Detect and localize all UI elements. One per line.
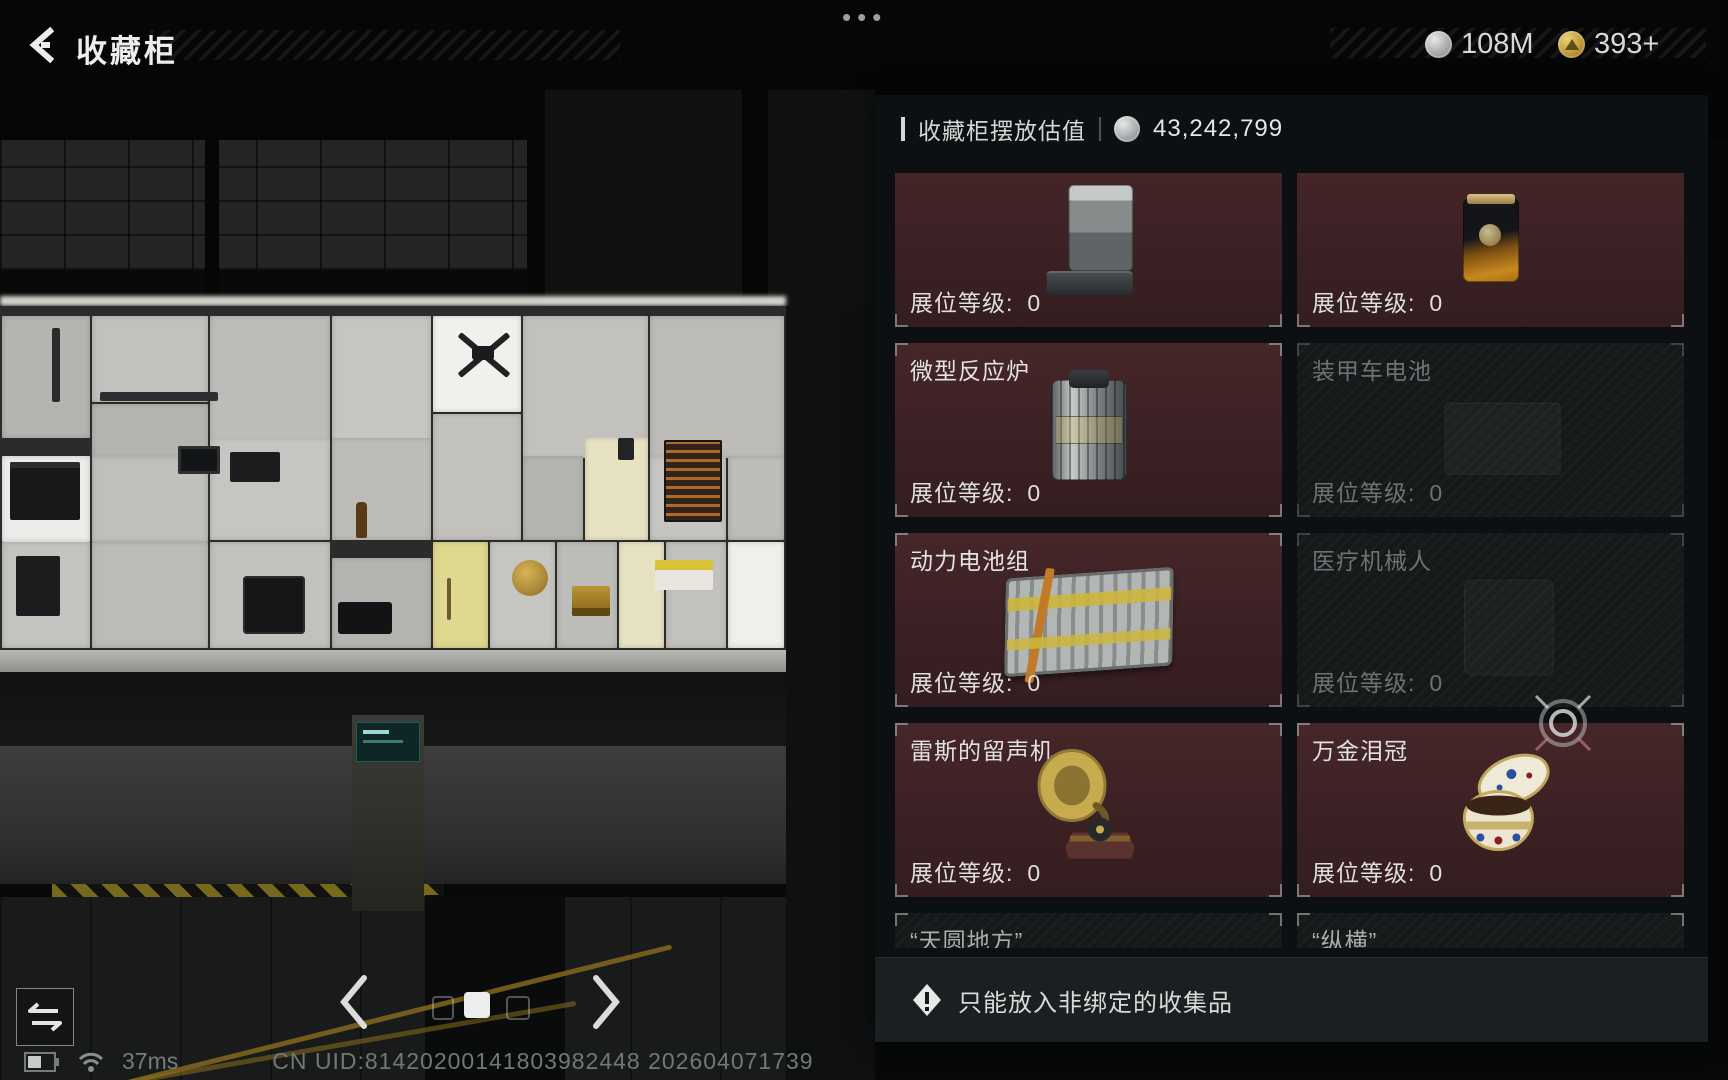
wall-item-parcel-box bbox=[655, 560, 713, 590]
wall-panel bbox=[332, 316, 431, 458]
item-image-coffee-bag bbox=[1463, 198, 1519, 282]
gold-coin-icon bbox=[1558, 31, 1585, 58]
wall-panel bbox=[523, 316, 648, 458]
wall-item-frame bbox=[618, 438, 634, 460]
booth-level: 展位等级:0 bbox=[1312, 664, 1443, 698]
booth-level: 展位等级:0 bbox=[910, 854, 1041, 888]
cabinet-value: 43,242,799 bbox=[1153, 115, 1283, 143]
collection-tile[interactable]: “纵横” 展位等级:0 bbox=[1297, 913, 1684, 948]
gold-amount: 393+ bbox=[1594, 28, 1659, 61]
ceiling-grid bbox=[0, 140, 535, 270]
wall-panel bbox=[210, 316, 330, 458]
booth-level: 展位等级:0 bbox=[1312, 854, 1443, 888]
warning-diamond-icon bbox=[911, 983, 943, 1017]
cabinet-light bbox=[0, 296, 786, 306]
wall-item-case bbox=[243, 576, 305, 634]
silver-amount: 108M bbox=[1461, 28, 1534, 61]
wall-item-device bbox=[230, 452, 280, 482]
silver-coin-icon bbox=[1425, 31, 1452, 58]
tiles-viewport[interactable]: 展位等级:0 展位等级:0 微型反应炉 展位等级:0 装甲车电池 bbox=[875, 173, 1708, 948]
notice-text: 只能放入非绑定的收集品 bbox=[958, 983, 1233, 1018]
wall-panel bbox=[433, 542, 488, 648]
item-image-armored-vehicle-battery bbox=[1444, 403, 1560, 475]
wall-panel bbox=[2, 316, 90, 438]
scene-right-dark bbox=[786, 306, 875, 1080]
collection-cabinet-screen: 收藏柜 ••• 108M 393+ 收藏柜摆放估值 43,242,799 展位等… bbox=[0, 0, 1728, 1080]
wall-panel bbox=[619, 542, 664, 648]
wall-panel bbox=[666, 542, 726, 648]
currency-gold: 393+ bbox=[1558, 28, 1659, 61]
item-image-power-battery-pack bbox=[1004, 567, 1173, 677]
back-button[interactable] bbox=[24, 26, 62, 64]
collection-tile[interactable]: 雷斯的留声机 展位等级:0 bbox=[895, 723, 1282, 897]
wall-item-battery-rack bbox=[664, 440, 722, 522]
wall-panel bbox=[332, 438, 431, 540]
page-indicator[interactable] bbox=[432, 996, 454, 1020]
notice-bar: 只能放入非绑定的收集品 bbox=[875, 957, 1708, 1042]
wall-item-drone-body bbox=[472, 346, 494, 360]
wall-panel bbox=[728, 456, 784, 540]
kiosk-terminal bbox=[352, 715, 424, 911]
beam bbox=[742, 60, 768, 306]
wall-item-dried-flower bbox=[447, 578, 451, 620]
page-indicator-active[interactable] bbox=[464, 992, 490, 1018]
collection-tile[interactable]: 展位等级:0 bbox=[895, 173, 1282, 327]
item-name: 医疗机械人 bbox=[1312, 542, 1432, 576]
item-image-tear-crown bbox=[1436, 748, 1566, 873]
counter-top bbox=[0, 650, 786, 672]
title-hatch-band bbox=[150, 30, 620, 60]
tiles-grid: 展位等级:0 展位等级:0 微型反应炉 展位等级:0 装甲车电池 bbox=[875, 173, 1708, 948]
collection-tile[interactable]: 微型反应炉 展位等级:0 bbox=[895, 343, 1282, 517]
wall-panel bbox=[523, 456, 583, 540]
booth-level: 展位等级:0 bbox=[910, 664, 1041, 698]
next-page-button[interactable] bbox=[584, 972, 628, 1037]
item-name: 动力电池组 bbox=[910, 542, 1030, 576]
item-name: 装甲车电池 bbox=[1312, 352, 1432, 386]
status-bar: 37ms CN UID:81420200141803982448 2026040… bbox=[24, 1048, 814, 1075]
uid-text: CN UID:81420200141803982448 202604071739 bbox=[272, 1048, 813, 1075]
collection-tile[interactable]: 展位等级:0 bbox=[1297, 173, 1684, 327]
collection-tile[interactable]: 万金泪冠 bbox=[1297, 723, 1684, 897]
page-title: 收藏柜 bbox=[76, 26, 178, 71]
collection-tile[interactable]: 医疗机械人 展位等级:0 bbox=[1297, 533, 1684, 707]
battery-icon bbox=[24, 1051, 60, 1073]
collection-tile[interactable]: “天圆地方” 展位等级:0 bbox=[895, 913, 1282, 948]
view-swap-button[interactable] bbox=[16, 988, 74, 1046]
silver-coin-icon bbox=[1114, 116, 1140, 142]
wifi-icon bbox=[78, 1051, 104, 1073]
wall-item-tablet-2 bbox=[16, 556, 60, 616]
wall-item-case-2 bbox=[338, 602, 392, 634]
wall-item-gold-plate bbox=[512, 560, 548, 596]
collection-tile[interactable]: 装甲车电池 展位等级:0 bbox=[1297, 343, 1684, 517]
wall-panel bbox=[490, 542, 555, 648]
wall-panel bbox=[728, 542, 784, 648]
collection-panel: 收藏柜摆放估值 43,242,799 展位等级:0 展位等级:0 bbox=[875, 95, 1708, 1042]
wall-item-printer bbox=[10, 462, 80, 520]
wall-panel bbox=[433, 414, 521, 540]
wall-item-tablet bbox=[178, 446, 220, 474]
wall-item-gold-chest bbox=[572, 586, 610, 616]
menu-dots-button[interactable]: ••• bbox=[842, 2, 887, 33]
item-name: “纵横” bbox=[1312, 922, 1377, 948]
booth-level: 展位等级:0 bbox=[1312, 474, 1443, 508]
accent-tick bbox=[901, 117, 905, 141]
page-indicator[interactable] bbox=[506, 996, 530, 1020]
wall-item-rifle-horizontal bbox=[100, 392, 218, 401]
ping-value: 37ms bbox=[122, 1048, 178, 1075]
kiosk-screen-line bbox=[363, 730, 389, 734]
booth-level: 展位等级:0 bbox=[1312, 284, 1443, 318]
item-name: 万金泪冠 bbox=[1312, 732, 1408, 766]
kiosk-screen bbox=[356, 722, 420, 762]
wall-panel bbox=[92, 316, 208, 402]
prev-page-button[interactable] bbox=[332, 972, 376, 1037]
booth-level: 展位等级:0 bbox=[910, 284, 1041, 318]
collection-tile[interactable]: 动力电池组 展位等级:0 bbox=[895, 533, 1282, 707]
item-image-gramophone bbox=[1024, 748, 1154, 873]
item-image-micro-reactor bbox=[1051, 380, 1127, 480]
wall-panel bbox=[585, 438, 648, 540]
panel-header: 收藏柜摆放估值 43,242,799 bbox=[901, 112, 1283, 146]
item-name: “天圆地方” bbox=[910, 922, 1023, 948]
swap-arrows-icon bbox=[28, 1002, 62, 1032]
kiosk-screen-line bbox=[363, 740, 403, 743]
value-label: 收藏柜摆放估值 bbox=[918, 112, 1086, 146]
wall-item-rifle-vertical bbox=[52, 328, 60, 402]
wall-item-bottle bbox=[356, 502, 367, 538]
divider bbox=[1099, 117, 1101, 141]
item-image-medical-robot bbox=[1464, 580, 1554, 676]
wall-panel bbox=[650, 316, 784, 458]
item-image-robot-vacuum bbox=[1046, 185, 1142, 295]
wall-panel bbox=[92, 542, 208, 648]
booth-level: 展位等级:0 bbox=[910, 474, 1041, 508]
currency-silver: 108M bbox=[1425, 28, 1534, 61]
item-name: 微型反应炉 bbox=[910, 352, 1030, 386]
ceiling-right bbox=[535, 90, 875, 306]
